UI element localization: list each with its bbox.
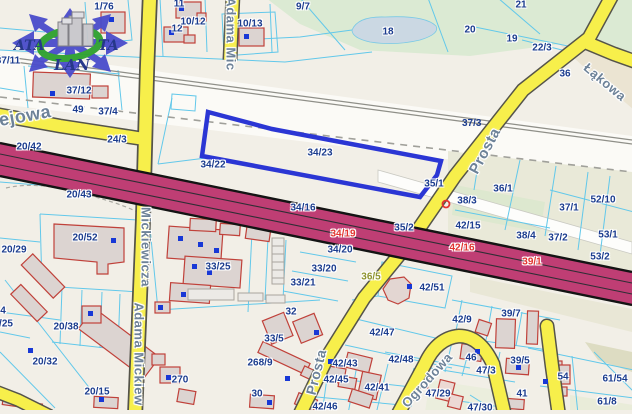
road-adama-north [230,0,233,60]
road-corner [0,390,50,410]
logo-text-right: TA [98,38,119,54]
logo-text-bottom: LAN [53,56,91,74]
parcel-label: 37/3 [462,118,482,129]
logo-text-left: ATA [12,38,45,54]
road-ogrodowa-stub [547,326,559,410]
ladder-structure [272,238,284,284]
logo-buildings-icon [58,12,93,46]
map-canvas[interactable]: 37/3 [0,0,632,410]
map-image: 37/3 [0,0,632,410]
